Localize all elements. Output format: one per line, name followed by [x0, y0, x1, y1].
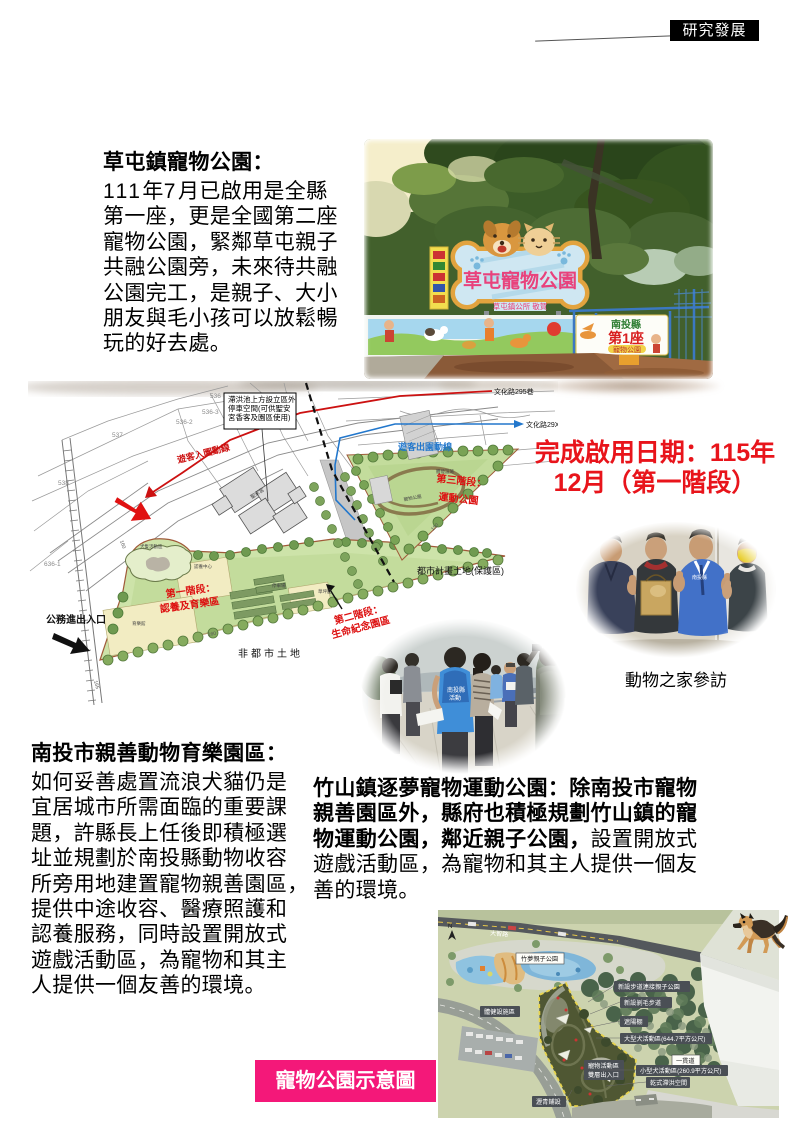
svg-text:停車空間(可供聖安: 停車空間(可供聖安	[228, 403, 291, 413]
svg-text:草屯寵物公園: 草屯寵物公園	[463, 269, 577, 292]
svg-text:文化路295巷: 文化路295巷	[494, 387, 534, 396]
svg-text:竹夢親子公園: 竹夢親子公園	[521, 955, 558, 963]
svg-text:536-2: 536-2	[176, 419, 193, 426]
svg-text:165: 165	[92, 680, 100, 690]
svg-text:第1座: 第1座	[608, 330, 644, 346]
svg-text:非都市土地: 非都市土地	[238, 647, 303, 660]
svg-text:寵物活動區: 寵物活動區	[588, 1062, 619, 1070]
svg-text:160: 160	[118, 540, 127, 550]
svg-text:小型犬活動區(260.9平方公尺): 小型犬活動區(260.9平方公尺)	[640, 1067, 721, 1075]
svg-text:滯洪池上方設立區外: 滯洪池上方設立區外	[228, 394, 296, 404]
svg-text:文化路29X: 文化路29X	[526, 420, 558, 429]
svg-text:遮陽棚: 遮陽棚	[624, 1018, 643, 1026]
svg-text:536: 536	[210, 393, 221, 400]
svg-text:新設剝毛步道: 新設剝毛步道	[624, 999, 661, 1007]
svg-text:停車場: 停車場	[272, 582, 286, 589]
svg-text:雙層出入口: 雙層出入口	[588, 1071, 619, 1079]
svg-text:大型犬活動區(644.7平方公尺): 大型犬活動區(644.7平方公尺)	[624, 1035, 705, 1043]
svg-text:體健設施區: 體健設施區	[484, 1008, 515, 1016]
svg-text:遊客入園動線: 遊客入園動線	[176, 441, 231, 465]
svg-text:宮香客及園區使用): 宮香客及園區使用)	[228, 412, 291, 422]
svg-text:寵物公園: 寵物公園	[613, 345, 641, 354]
svg-text:537: 537	[112, 432, 123, 439]
svg-text:N: N	[448, 924, 452, 930]
svg-text:新設步道連接親子公園: 新設步道連接親子公園	[618, 983, 680, 991]
svg-text:育樂館: 育樂館	[132, 620, 146, 627]
svg-text:乾式滯洪空間: 乾式滯洪空間	[650, 1079, 687, 1087]
svg-text:瀝青鋪設: 瀝青鋪設	[536, 1098, 561, 1106]
svg-text:犬隻活動區: 犬隻活動區	[140, 543, 163, 550]
svg-text:草屯鎮公所 敬賀: 草屯鎮公所 敬賀	[493, 301, 548, 311]
svg-text:體能設施: 體能設施	[436, 468, 454, 475]
svg-text:遊客出園動線: 遊客出園動線	[398, 441, 452, 452]
svg-text:公務進出入口: 公務進出入口	[46, 613, 106, 626]
svg-text:草坪區: 草坪區	[318, 588, 332, 595]
svg-text:認養中心: 認養中心	[194, 563, 212, 570]
svg-text:536-3: 536-3	[202, 409, 219, 416]
svg-text:都市計畫土地(保護區): 都市計畫土地(保護區)	[417, 565, 504, 576]
svg-text:636-1: 636-1	[44, 561, 61, 568]
svg-text:一貫道: 一貫道	[676, 1057, 695, 1065]
